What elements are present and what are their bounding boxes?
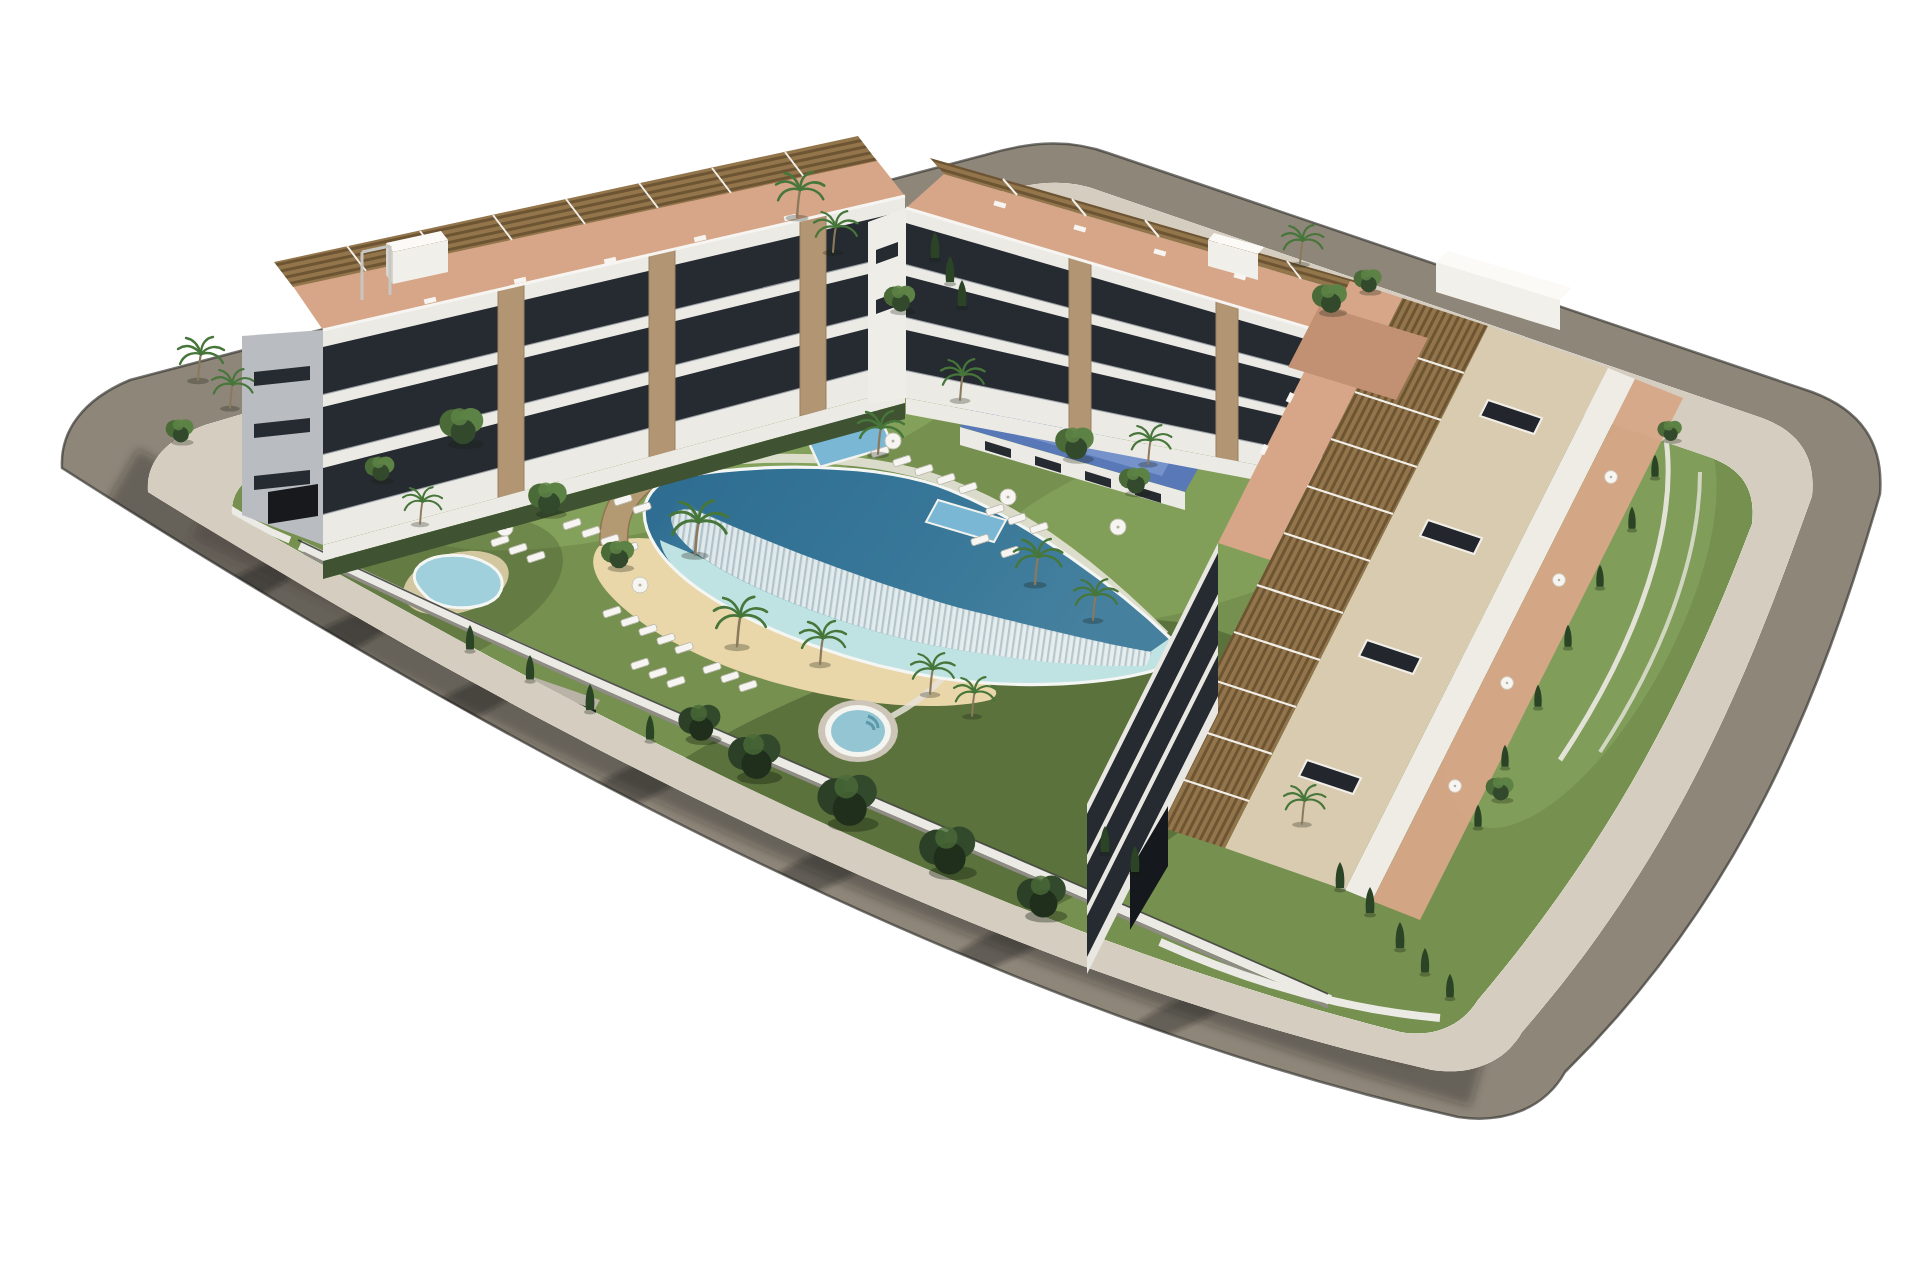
parasol bbox=[632, 577, 648, 593]
render-canvas bbox=[0, 0, 1920, 1280]
jacuzzi-water bbox=[831, 710, 885, 752]
parasol bbox=[1605, 471, 1618, 484]
parasol bbox=[1449, 780, 1462, 793]
parasol bbox=[1553, 574, 1566, 587]
parasol bbox=[885, 433, 901, 449]
parasol bbox=[1110, 519, 1126, 535]
aerial-render bbox=[0, 0, 1920, 1280]
parasol bbox=[1501, 677, 1514, 690]
jacuzzi bbox=[818, 700, 898, 762]
parasol bbox=[1000, 489, 1016, 505]
